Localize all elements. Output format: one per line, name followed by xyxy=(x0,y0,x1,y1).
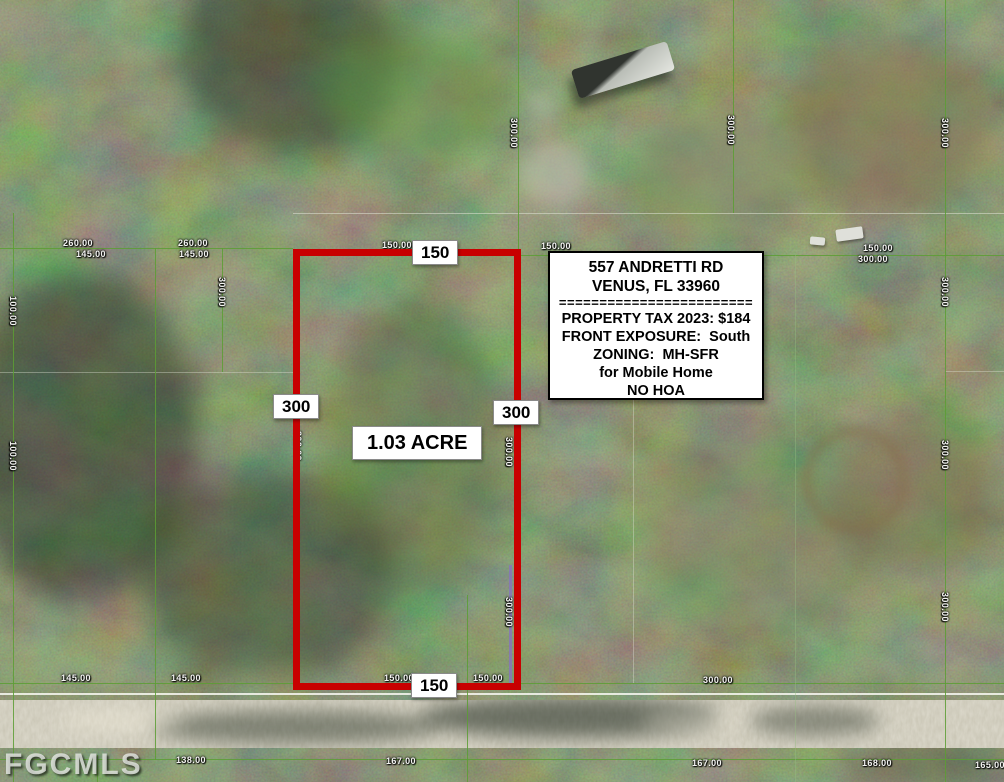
sand-highlight xyxy=(55,712,185,730)
acreage-label: 1.03 ACRE xyxy=(352,426,482,460)
road-line xyxy=(0,693,1004,695)
zoning-line-2: for Mobile Home xyxy=(550,364,762,382)
parcel-line xyxy=(0,248,293,249)
parcel-line xyxy=(0,759,1004,760)
parcel-line xyxy=(795,255,796,782)
tree-shadow xyxy=(750,706,880,736)
zoning-line: ZONING: MH-SFR xyxy=(550,346,762,364)
tree-shadow xyxy=(150,710,440,744)
sand-clearing xyxy=(524,88,560,128)
sand-highlight xyxy=(640,714,740,728)
fgcmls-watermark: FGCMLS xyxy=(4,748,143,782)
parcel-line xyxy=(518,0,519,255)
sand-clearing xyxy=(516,142,590,206)
dimension-label-top: 150 xyxy=(412,240,458,265)
dimension-label-bottom: 150 xyxy=(411,673,457,698)
front-exposure-line: FRONT EXPOSURE: South xyxy=(550,328,762,346)
property-tax-line: PROPERTY TAX 2023: $184 xyxy=(550,310,762,328)
divider-line: ======================== xyxy=(550,296,762,310)
parcel-line xyxy=(293,213,1004,214)
parcel-line xyxy=(13,213,14,782)
city-state-zip-line: VENUS, FL 33960 xyxy=(550,277,762,296)
dimension-label-right: 300 xyxy=(493,400,539,425)
dirt-trail-ring xyxy=(800,425,910,535)
dirt-road xyxy=(0,700,1004,748)
parcel-line xyxy=(733,0,734,213)
parcel-line xyxy=(155,248,156,760)
parcel-line xyxy=(945,0,946,782)
property-info-box: 557 ANDRETTI RD VENUS, FL 33960 ========… xyxy=(548,251,764,400)
property-boundary xyxy=(293,249,521,690)
dimension-label-left: 300 xyxy=(273,394,319,419)
aerial-parcel-map: 260.00145.00260.00145.00150.00150.00150.… xyxy=(0,0,1004,782)
parcel-line xyxy=(945,371,1004,372)
parcel-line xyxy=(0,372,293,373)
parcel-line xyxy=(222,248,223,372)
address-line: 557 ANDRETTI RD xyxy=(550,258,762,277)
vehicle xyxy=(810,236,826,245)
hoa-line: NO HOA xyxy=(550,382,762,400)
